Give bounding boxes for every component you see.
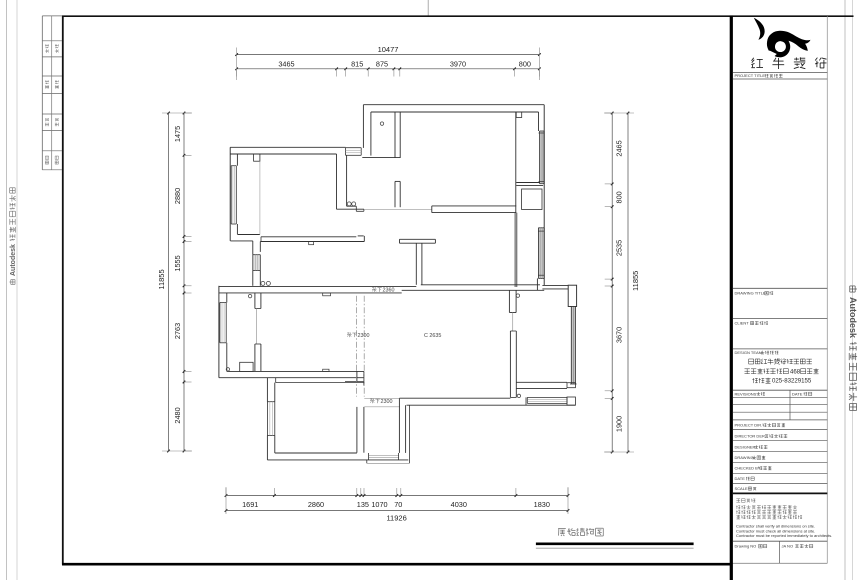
svg-text:2860: 2860 <box>308 500 324 509</box>
svg-text:JA NO: JA NO <box>782 544 794 549</box>
svg-text:1900: 1900 <box>614 416 623 432</box>
svg-text:2300: 2300 <box>381 399 393 405</box>
svg-text:2763: 2763 <box>173 323 182 339</box>
svg-text:C 2635: C 2635 <box>424 333 441 339</box>
svg-text:CLIENT: CLIENT <box>735 321 750 326</box>
svg-text:CHECKED BY: CHECKED BY <box>735 466 761 471</box>
svg-text:Contractor must be reported im: Contractor must be reported immediately … <box>736 533 832 538</box>
svg-text:4030: 4030 <box>451 500 467 509</box>
svg-text:1691: 1691 <box>242 500 258 509</box>
svg-text:DESIGNER: DESIGNER <box>735 445 756 450</box>
svg-text:2880: 2880 <box>173 188 182 204</box>
svg-text:Autodesk: Autodesk <box>848 297 858 339</box>
svg-text:2535: 2535 <box>614 240 623 256</box>
svg-text:SCALE: SCALE <box>735 486 748 491</box>
svg-text:11926: 11926 <box>386 514 406 523</box>
svg-text:815: 815 <box>351 59 363 68</box>
svg-text:1475: 1475 <box>173 126 182 142</box>
svg-text:3670: 3670 <box>614 327 623 343</box>
svg-text:135: 135 <box>357 500 369 509</box>
svg-text:10477: 10477 <box>378 45 399 54</box>
svg-text:2360: 2360 <box>383 288 395 294</box>
svg-text:11855: 11855 <box>157 269 166 289</box>
svg-text:DATE: DATE <box>792 391 803 396</box>
svg-text:DIRECTOR DER.: DIRECTOR DER. <box>735 434 766 439</box>
svg-text:800: 800 <box>519 59 531 68</box>
svg-text:3465: 3465 <box>278 59 294 68</box>
svg-text:2300: 2300 <box>358 333 370 339</box>
svg-text:3970: 3970 <box>450 59 466 68</box>
svg-text:PROJECT DIR.: PROJECT DIR. <box>735 423 763 428</box>
svg-text:468: 468 <box>790 368 801 375</box>
svg-text:2465: 2465 <box>614 140 623 156</box>
svg-text:1830: 1830 <box>534 500 550 509</box>
svg-text:Autodesk: Autodesk <box>10 244 17 276</box>
svg-text:025-83229155: 025-83229155 <box>772 378 812 385</box>
svg-text:875: 875 <box>376 59 388 68</box>
svg-text:1555: 1555 <box>173 255 182 271</box>
svg-text:2480: 2480 <box>173 407 182 423</box>
svg-text:Drawing NO: Drawing NO <box>735 544 757 549</box>
svg-text:PROJECT TITLE: PROJECT TITLE <box>735 73 766 78</box>
svg-text:DATE: DATE <box>735 476 746 481</box>
svg-text:11855: 11855 <box>631 271 640 291</box>
svg-text:DRAWING TITLE: DRAWING TITLE <box>735 291 766 296</box>
svg-text:DESIGN TEAM: DESIGN TEAM <box>735 350 763 355</box>
svg-text:REVISIONS: REVISIONS <box>735 391 757 396</box>
svg-text:800: 800 <box>614 191 623 203</box>
svg-text:70: 70 <box>394 500 402 509</box>
svg-text:DRAWING: DRAWING <box>735 455 754 460</box>
svg-text:1070: 1070 <box>371 500 387 509</box>
